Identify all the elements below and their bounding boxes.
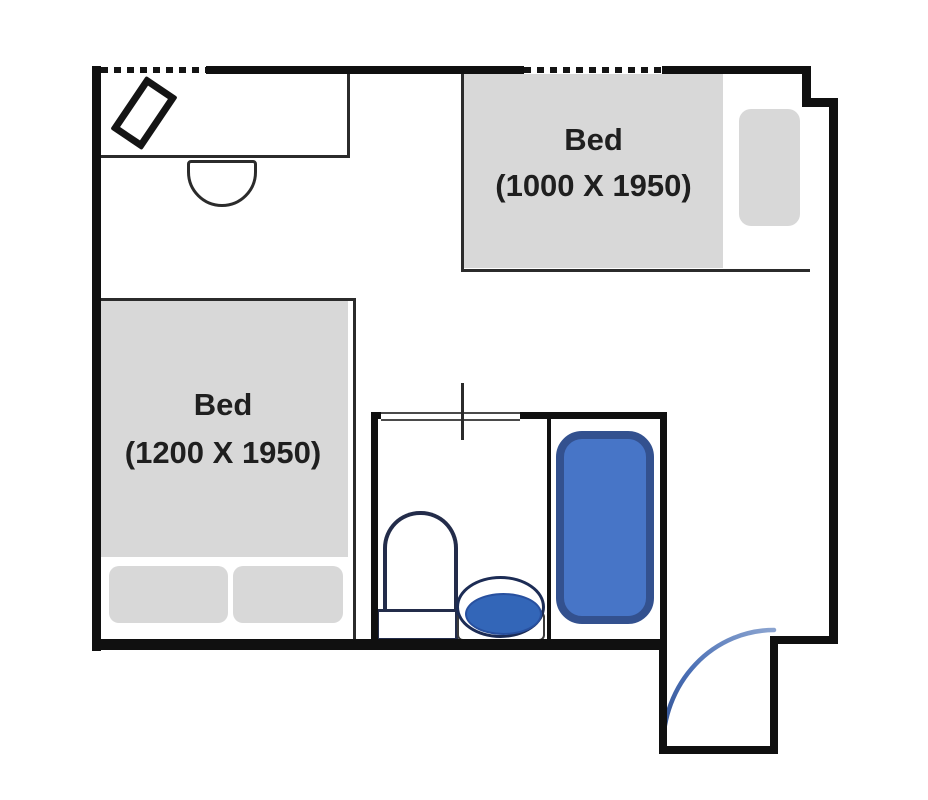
bathroom-top-wall [520, 412, 667, 419]
window-dashed-right [524, 67, 662, 73]
wall-right [829, 98, 838, 644]
sink-basin [465, 593, 542, 635]
wall-bottom-right-segment [770, 636, 838, 644]
bathroom-divider-wall [547, 419, 551, 639]
toilet-bowl [383, 511, 458, 613]
window-dashed-left [101, 67, 206, 73]
bed-1-label: Bed [98, 381, 348, 429]
entry-alcove-bottom-wall [659, 746, 778, 754]
bed-2-label: Bed [464, 117, 723, 163]
bathroom-door-track [381, 412, 520, 421]
bed-2-label-block: Bed (1000 X 1950) [464, 117, 723, 209]
wall-left [92, 66, 101, 651]
entry-alcove-right-wall [770, 636, 778, 754]
toilet-cistern [376, 609, 458, 641]
wall-top-segment-1 [206, 66, 524, 74]
door-arc-path [663, 630, 774, 747]
bathtub [556, 431, 654, 624]
bathroom-left-wall [371, 412, 378, 641]
wall-top-segment-2 [662, 66, 811, 74]
entry-alcove-left-wall [659, 644, 667, 754]
wall-bottom-main [92, 639, 667, 650]
floorplan-canvas: Bed (1200 X 1950) Bed (1000 X 1950) [0, 0, 928, 800]
bathroom-right-wall [660, 412, 667, 646]
bed-2-dimensions: (1000 X 1950) [464, 163, 723, 209]
bed-1-dimensions: (1200 X 1950) [98, 429, 348, 477]
bed-1-label-block: Bed (1200 X 1950) [98, 381, 348, 477]
bathroom-door-marker [461, 383, 464, 440]
desk-chair [187, 160, 257, 207]
